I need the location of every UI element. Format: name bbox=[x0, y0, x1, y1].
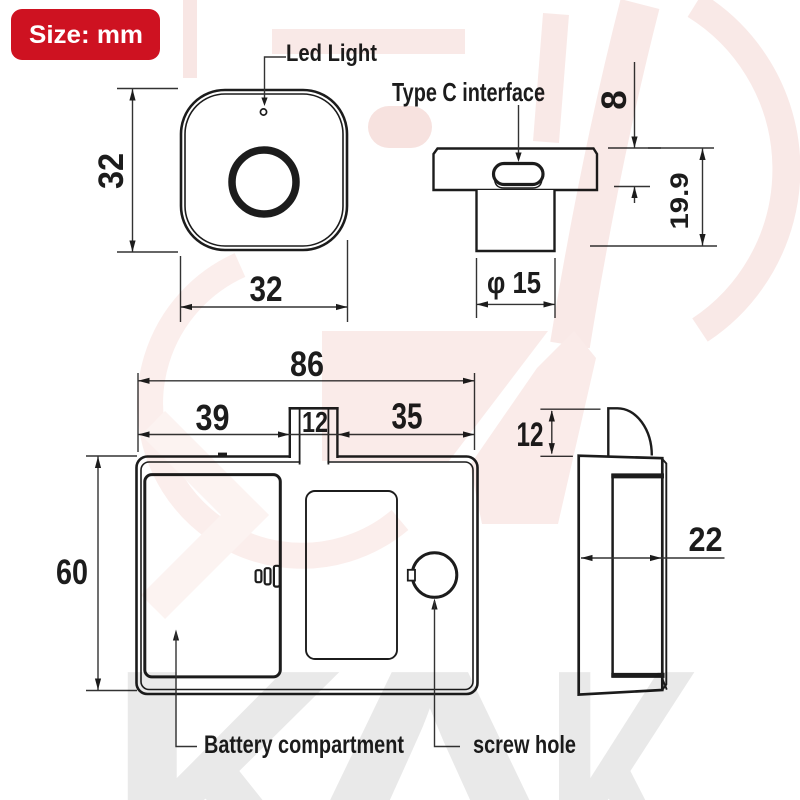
svg-text:39: 39 bbox=[196, 397, 230, 438]
svg-text:Type C interface: Type C interface bbox=[392, 77, 545, 107]
svg-text:φ 15: φ 15 bbox=[487, 265, 541, 300]
svg-text:K: K bbox=[544, 600, 701, 800]
svg-text:A: A bbox=[268, 599, 592, 800]
svg-text:22: 22 bbox=[689, 521, 723, 559]
svg-text:86: 86 bbox=[290, 345, 324, 384]
svg-text:Size: mm: Size: mm bbox=[29, 21, 143, 49]
svg-text:19.9: 19.9 bbox=[666, 173, 694, 230]
svg-text:60: 60 bbox=[56, 553, 88, 592]
svg-text:32: 32 bbox=[92, 153, 131, 189]
svg-text:32: 32 bbox=[250, 270, 283, 309]
